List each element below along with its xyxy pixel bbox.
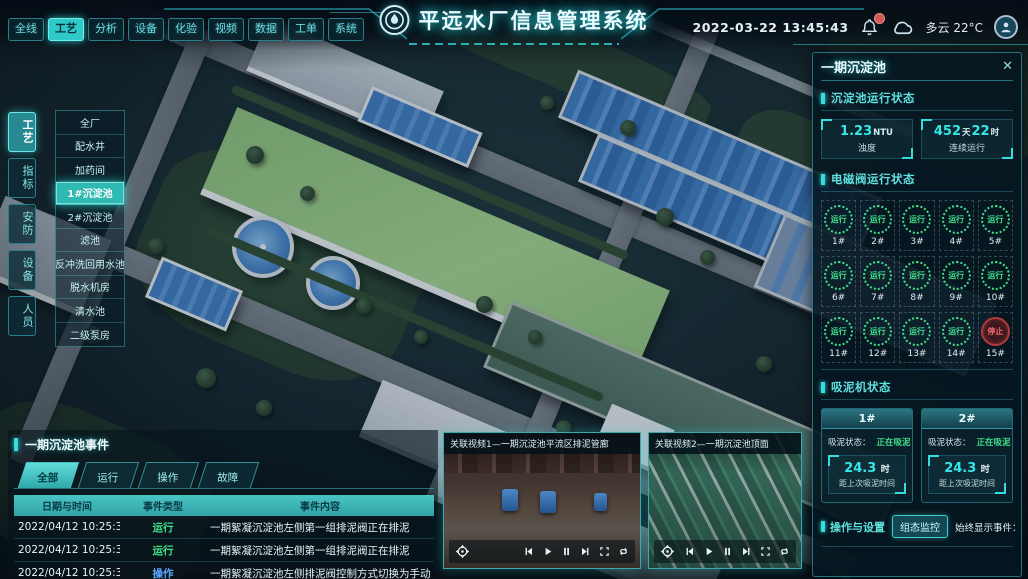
mud-unit-id: 1# [822,409,912,429]
valve-id-label: 5# [979,237,1012,247]
mud-timer-box: 24.3 时 距上次吸泥时间 [928,455,1006,494]
mud-unit-card-2: 2# 吸泥状态： 正在吸泥 24.3 时 距上次吸泥时间 [921,408,1013,503]
video-title: 关联视频2—一期沉淀池顶面 [649,433,801,454]
menu-item-6[interactable]: 滤池 [56,229,124,253]
skip-forward-icon[interactable] [580,546,591,557]
app-title-group: 平远水厂信息管理系统 [380,5,649,35]
user-avatar[interactable] [994,15,1018,39]
valve-status-indicator: 运行 [942,205,971,234]
title-accent-bar [14,438,18,451]
divider [821,369,1013,370]
tree [528,330,542,344]
mud-status-label: 吸泥状态： [928,436,971,448]
section-header-valves: 电磁阀运行状态 [821,171,1013,192]
valve-status-indicator: 运行 [824,317,853,346]
mud-timer-value: 24.3 时 [829,461,905,476]
video-panel-2[interactable]: 关联视频2—一期沉淀池顶面 [648,432,802,569]
loop-icon[interactable] [779,546,790,557]
header-line-right [793,44,1028,45]
fullscreen-icon[interactable] [760,546,771,557]
valve-cell-14: 运行14# [939,312,974,363]
play-icon[interactable] [542,546,553,557]
tree [196,368,216,388]
valve-status-grid: 运行1#运行2#运行3#运行4#运行5#运行6#运行7#运行8#运行9#运行10… [821,200,1013,363]
close-icon[interactable]: ✕ [1002,60,1013,73]
mud-timer-caption: 距上次吸泥时间 [929,478,1005,489]
valve-cell-3: 运行3# [899,200,934,251]
event-row-1: 2022/04/12 10:25:35运行一期絮凝沉淀池左侧第一组排泥阀正在排泥 [14,516,434,539]
events-panel: 一期沉淀池事件 全部运行操作故障 日期与时间事件类型事件内容 2022/04/1… [8,430,438,572]
top-bar: 全线工艺分析设备化验视频数据工单系统 平远水厂信息管理系统 2022-03-22… [0,0,1028,50]
menu-item-2[interactable]: 配水井 [56,135,124,159]
left-tab-3[interactable]: 安防 [8,204,36,244]
datetime-label: 2022-03-22 13:45:43 [693,20,849,35]
menu-item-9[interactable]: 清水池 [56,299,124,323]
play-icon[interactable] [703,546,714,557]
events-tab-3[interactable]: 操作 [138,462,199,488]
tree [356,298,372,314]
mud-status-row: 吸泥状态： 正在吸泥 [822,429,912,448]
operations-settings-row: 操作与设置 组态监控 始终显示事件： [821,515,1013,547]
top-nav-item-3[interactable]: 分析 [88,18,124,41]
valve-id-label: 14# [940,349,973,359]
panel-header: 一期沉淀池 ✕ [821,53,1013,81]
video-transport-buttons [523,546,629,557]
valve-cell-4: 运行4# [939,200,974,251]
event-type: 操作 [120,562,206,579]
valve-status-indicator: 运行 [824,261,853,290]
valve-cell-10: 运行10# [978,256,1013,307]
status-card-2: 452天22时连续运行 [921,119,1013,159]
event-time: 2022/04/12 10:25:35 [14,539,120,562]
valve-id-label: 12# [861,349,894,359]
valve-cell-5: 运行5# [978,200,1013,251]
top-nav-item-9[interactable]: 系统 [328,18,364,41]
panel-title: 一期沉淀池 [821,57,886,76]
left-tab-5[interactable]: 人员 [8,296,36,336]
section-header-mud: 吸泥机状态 [821,379,1013,400]
section-header-ops: 操作与设置 [821,519,885,535]
toggle-label: 始终显示事件： [955,520,1022,534]
app-logo-icon [380,5,410,35]
section-title: 沉淀池运行状态 [831,90,915,106]
ptz-joystick-icon[interactable] [455,544,470,559]
top-nav: 全线工艺分析设备化验视频数据工单系统 [8,18,364,41]
events-column-header: 事件内容 [206,495,434,516]
weather-label: 多云 22°C [926,19,983,36]
valve-cell-12: 运行12# [860,312,895,363]
left-tab-4[interactable]: 设备 [8,250,36,290]
scada-monitor-button[interactable]: 组态监控 [892,515,948,538]
tree [756,356,772,372]
valve-cell-1: 运行1# [821,200,856,251]
section-title: 操作与设置 [830,519,885,535]
top-nav-item-4[interactable]: 设备 [128,18,164,41]
valve-id-label: 15# [979,349,1012,359]
status-card-value: 452天22时 [934,124,1000,139]
video-panel-1[interactable]: 关联视频1—一期沉淀池平流区排泥管廊 [443,432,641,569]
event-content: 一期絮凝沉淀池左侧第一组排泥阀正在排泥 [206,516,434,539]
skip-back-icon[interactable] [523,546,534,557]
valve-status-indicator: 运行 [902,261,931,290]
notification-badge [874,13,885,24]
valve-cell-9: 运行9# [939,256,974,307]
mud-status-value: 正在吸泥 [977,436,1011,448]
valve-status-indicator: 运行 [942,261,971,290]
events-title: 一期沉淀池事件 [25,436,109,453]
section-title: 吸泥机状态 [831,379,891,395]
tree [414,330,428,344]
page-title: 平远水厂信息管理系统 [419,5,649,35]
events-filter-tabs: 全部运行操作故障 [14,462,434,489]
pause-icon[interactable] [722,546,733,557]
event-row-2: 2022/04/12 10:25:35运行一期絮凝沉淀池左侧第一组排泥阀正在排泥 [14,539,434,562]
valve-id-label: 8# [900,293,933,303]
video-control-bar [654,540,796,563]
header-right-group: 2022-03-22 13:45:43 多云 22°C [693,15,1018,39]
video-control-bar [449,540,635,563]
tree [476,296,493,313]
section-header-status: 沉淀池运行状态 [821,90,1013,111]
status-card-label: 浊度 [858,141,876,154]
valve-id-label: 3# [900,237,933,247]
valve-status-indicator: 运行 [981,261,1010,290]
top-nav-item-5[interactable]: 化验 [168,18,204,41]
valve-status-indicator: 运行 [942,317,971,346]
status-card-value: 1.23NTU [840,124,894,139]
events-title-row: 一期沉淀池事件 [14,436,434,453]
weather-cloud-icon [890,19,915,36]
video-title: 关联视频1—一期沉淀池平流区排泥管廊 [444,433,640,454]
valve-status-indicator: 运行 [981,205,1010,234]
valve-status-indicator: 运行 [824,205,853,234]
mud-status-value: 正在吸泥 [877,436,911,448]
tree [246,146,264,164]
event-type: 运行 [120,516,206,539]
valve-cell-6: 运行6# [821,256,856,307]
top-nav-item-7[interactable]: 数据 [248,18,284,41]
valve-id-label: 6# [822,293,855,303]
valve-id-label: 11# [822,349,855,359]
skip-back-icon[interactable] [684,546,695,557]
mud-scraper-cards: 1# 吸泥状态： 正在吸泥 24.3 时 距上次吸泥时间 2# 吸泥状态 [821,408,1013,503]
process-area-menu: 全厂配水井加药间1#沉淀池2#沉淀池滤池反冲洗回用水池脱水机房清水池二级泵房 [55,110,125,347]
video-transport-buttons [684,546,790,557]
mud-timer-value: 24.3 时 [929,461,1005,476]
valve-id-label: 10# [979,293,1012,303]
top-nav-item-2[interactable]: 工艺 [48,18,84,41]
valve-id-label: 4# [940,237,973,247]
valve-status-indicator: 停止 [981,317,1010,346]
menu-item-4[interactable]: 1#沉淀池 [56,182,124,206]
valve-cell-13: 运行13# [899,312,934,363]
top-nav-item-6[interactable]: 视频 [208,18,244,41]
valve-id-label: 2# [861,237,894,247]
event-content: 一期絮凝沉淀池左侧第一组排泥阀正在排泥 [206,539,434,562]
valve-id-label: 1# [822,237,855,247]
valve-cell-2: 运行2# [860,200,895,251]
mud-timer-box: 24.3 时 距上次吸泥时间 [828,455,906,494]
valve-id-label: 7# [861,293,894,303]
left-tab-1[interactable]: 工艺 [8,112,36,152]
sedimentation-detail-panel: 一期沉淀池 ✕ 沉淀池运行状态 1.23NTU浊度452天22时连续运行 电磁阀… [812,52,1022,577]
tree [148,238,164,254]
valve-status-indicator: 运行 [863,317,892,346]
tree [300,186,315,201]
skip-forward-icon[interactable] [741,546,752,557]
valve-id-label: 13# [900,349,933,359]
mud-unit-id: 2# [922,409,1012,429]
pause-icon[interactable] [561,546,572,557]
valve-status-indicator: 运行 [902,317,931,346]
valve-status-indicator: 运行 [863,261,892,290]
loop-icon[interactable] [618,546,629,557]
left-category-tabs: 工艺指标安防设备人员 [8,112,36,336]
fullscreen-icon[interactable] [599,546,610,557]
event-time: 2022/04/12 10:25:35 [14,516,120,539]
events-tab-4[interactable]: 故障 [198,462,259,488]
events-tab-1[interactable]: 全部 [18,462,79,488]
valve-id-label: 9# [940,293,973,303]
events-column-header: 事件类型 [120,495,206,516]
mud-status-row: 吸泥状态： 正在吸泥 [922,429,1012,448]
event-time: 2022/04/12 10:25:35 [14,562,120,579]
status-cards: 1.23NTU浊度452天22时连续运行 [821,119,1013,159]
events-table-header: 日期与时间事件类型事件内容 [14,495,434,516]
tree [620,120,636,136]
menu-item-10[interactable]: 二级泵房 [56,323,124,347]
event-type: 运行 [120,539,206,562]
left-tab-2[interactable]: 指标 [8,158,36,198]
status-card-label: 连续运行 [949,141,985,154]
menu-item-8[interactable]: 脱水机房 [56,276,124,300]
tree [656,208,674,226]
notification-bell-icon[interactable] [860,18,879,37]
valve-cell-11: 运行11# [821,312,856,363]
top-nav-item-1[interactable]: 全线 [8,18,44,41]
menu-item-1[interactable]: 全厂 [56,111,124,135]
mud-unit-card-1: 1# 吸泥状态： 正在吸泥 24.3 时 距上次吸泥时间 [821,408,913,503]
tree [256,400,272,416]
valve-cell-15: 停止15# [978,312,1013,363]
ptz-joystick-icon[interactable] [660,544,675,559]
mud-status-label: 吸泥状态： [828,436,871,448]
tree [700,250,715,265]
menu-item-7[interactable]: 反冲洗回用水池 [56,252,124,276]
top-nav-item-8[interactable]: 工单 [288,18,324,41]
events-tab-2[interactable]: 运行 [78,462,139,488]
section-title: 电磁阀运行状态 [831,171,915,187]
event-row-3: 2022/04/12 10:25:35操作一期絮凝沉淀池左侧排泥阀控制方式切换为… [14,562,434,579]
mud-timer-caption: 距上次吸泥时间 [829,478,905,489]
valve-status-indicator: 运行 [902,205,931,234]
valve-status-indicator: 运行 [863,205,892,234]
menu-item-3[interactable]: 加药间 [56,158,124,182]
events-column-header: 日期与时间 [14,495,120,516]
event-content: 一期絮凝沉淀池左侧排泥阀控制方式切换为手动 [206,562,434,579]
valve-cell-7: 运行7# [860,256,895,307]
tree [540,96,554,110]
valve-cell-8: 运行8# [899,256,934,307]
menu-item-5[interactable]: 2#沉淀池 [56,205,124,229]
status-card-1: 1.23NTU浊度 [821,119,913,159]
app-window: 全线工艺分析设备化验视频数据工单系统 平远水厂信息管理系统 2022-03-22… [0,0,1028,579]
events-table: 日期与时间事件类型事件内容 2022/04/12 10:25:35运行一期絮凝沉… [14,495,434,579]
